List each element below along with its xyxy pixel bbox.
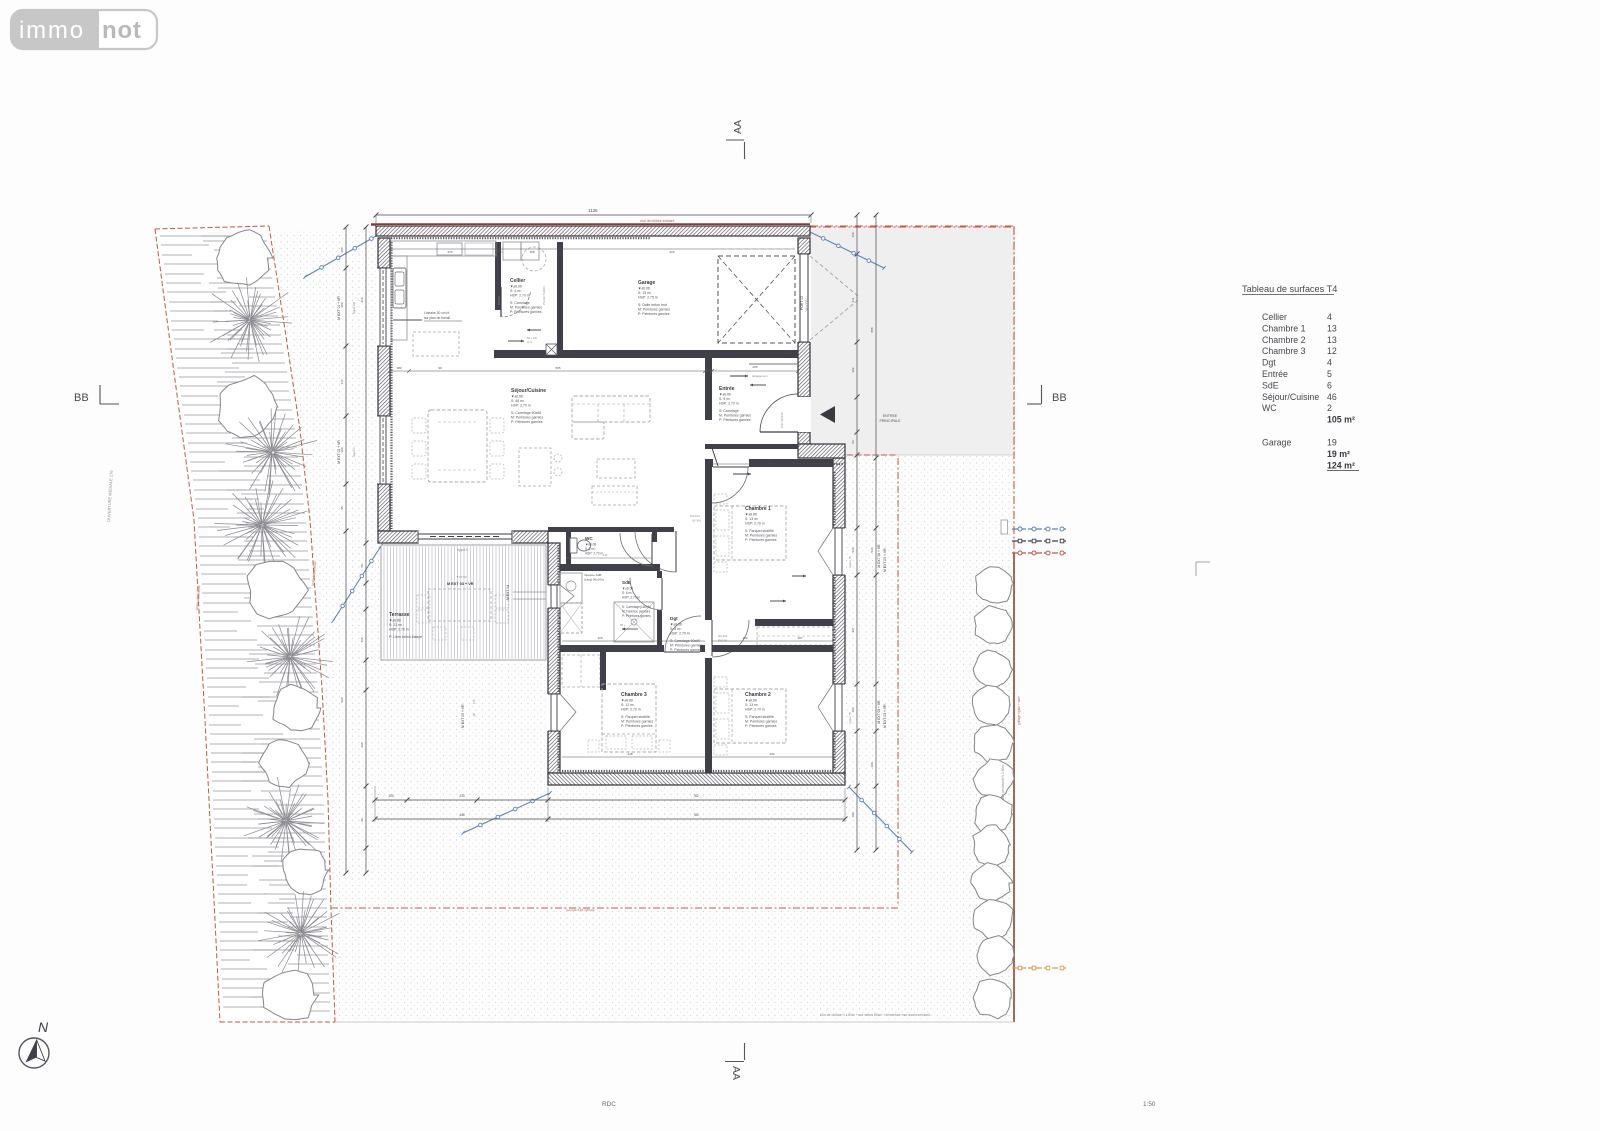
svg-text:M: Faïence peinture: M: Faïence peinture <box>622 610 651 614</box>
svg-text:Tableau de surfaces T4: Tableau de surfaces T4 <box>1242 284 1337 294</box>
svg-text:105 m²: 105 m² <box>1327 415 1355 425</box>
svg-text:205: 205 <box>752 365 757 369</box>
svg-text:H: 0: H: 0 <box>527 340 532 344</box>
svg-text:▼±0.00: ▼±0.00 <box>510 285 522 289</box>
svg-text:100: 100 <box>851 812 855 817</box>
svg-text:56: 56 <box>851 440 855 444</box>
svg-text:M: Peintures garnies: M: Peintures garnies <box>745 720 777 724</box>
svg-text:P: Peintures garnies: P: Peintures garnies <box>510 310 542 314</box>
svg-text:270: 270 <box>447 250 452 254</box>
svg-text:grillage rigide + haie: grillage rigide + haie <box>1017 696 1021 725</box>
svg-text:HSP: 2.70 m: HSP: 2.70 m <box>389 628 409 632</box>
svg-text:4: 4 <box>1327 312 1332 322</box>
svg-text:P: Peintures garnies: P: Peintures garnies <box>622 614 651 618</box>
svg-text:Garage: Garage <box>1262 438 1291 448</box>
svg-text:WC: WC <box>1262 403 1277 413</box>
svg-text:S: 22 m²: S: 22 m² <box>389 623 403 627</box>
svg-text:Entrée: Entrée <box>719 386 735 392</box>
svg-text:19: 19 <box>1327 438 1337 448</box>
svg-text:HSP: 2.70 m: HSP: 2.70 m <box>622 596 640 600</box>
svg-text:565: 565 <box>555 366 560 370</box>
svg-text:M: Peintures garnies: M: Peintures garnies <box>670 644 702 648</box>
svg-text:sur plan de travail: sur plan de travail <box>424 316 450 320</box>
svg-text:AA: AA <box>732 120 744 134</box>
svg-text:Pm.02 73/204: Pm.02 73/204 <box>542 286 546 305</box>
svg-text:PRINCIPALE: PRINCIPALE <box>879 419 901 423</box>
svg-text:immo: immo <box>19 17 85 44</box>
svg-text:90: 90 <box>498 250 502 254</box>
svg-text:P: Peintures garnies: P: Peintures garnies <box>638 312 670 316</box>
svg-text:307: 307 <box>851 627 855 632</box>
svg-text:haie persistante h.1.80m: haie persistante h.1.80m <box>1001 765 1005 800</box>
svg-text:90: 90 <box>360 818 364 822</box>
svg-text:not: not <box>102 17 142 44</box>
svg-text:Chambre 1: Chambre 1 <box>1262 323 1306 333</box>
svg-text:▼±0.00: ▼±0.00 <box>670 623 682 627</box>
svg-text:P: Peintures garnies: P: Peintures garnies <box>621 724 653 728</box>
svg-text:SdE: SdE <box>622 580 631 585</box>
svg-text:WC: WC <box>585 536 593 541</box>
svg-text:S: 5 m²: S: 5 m² <box>719 397 731 401</box>
svg-text:M EXT 03 + VR: M EXT 03 + VR <box>447 582 474 586</box>
svg-text:M EXT 01 + VR: M EXT 01 + VR <box>337 296 341 320</box>
svg-text:▼±0.00: ▼±0.00 <box>585 543 596 547</box>
svg-text:100: 100 <box>388 794 394 798</box>
svg-text:P.01 90/215: P.01 90/215 <box>780 412 784 428</box>
svg-text:19 m²: 19 m² <box>1327 449 1350 459</box>
svg-text:620: 620 <box>669 250 674 254</box>
svg-text:160: 160 <box>360 637 364 642</box>
svg-text:Cellier: Cellier <box>1262 312 1287 322</box>
svg-text:Appui 0M: Appui 0M <box>352 301 356 313</box>
svg-text:46: 46 <box>1327 392 1337 402</box>
svg-text:recul de 5.00 m/limite: recul de 5.00 m/limite <box>566 908 595 912</box>
svg-text:▼±0.00: ▼±0.00 <box>456 575 467 579</box>
svg-text:Séjour/Cuisine: Séjour/Cuisine <box>1262 392 1319 402</box>
svg-text:dégagement: dégagement <box>752 374 768 378</box>
svg-text:S: 13 m²: S: 13 m² <box>745 703 759 707</box>
svg-text:HSP: 2.70 m: HSP: 2.70 m <box>745 522 765 526</box>
svg-text:240: 240 <box>767 459 772 463</box>
svg-text:HSP: 2.70 m: HSP: 2.70 m <box>510 294 530 298</box>
svg-text:S: 6 m²: S: 6 m² <box>622 591 632 595</box>
svg-text:160: 160 <box>851 707 855 712</box>
svg-text:302: 302 <box>851 367 855 372</box>
svg-text:HSP: 2.70 m: HSP: 2.70 m <box>745 708 765 712</box>
svg-text:M: Peintures garnies: M: Peintures garnies <box>511 416 543 420</box>
svg-text:HSP: 2.70 m: HSP: 2.70 m <box>670 632 690 636</box>
svg-text:P.04.01: P.04.01 <box>690 514 700 518</box>
svg-text:M EXT 03 + VR: M EXT 03 + VR <box>877 544 881 568</box>
svg-text:Chambre 3: Chambre 3 <box>621 692 647 698</box>
svg-text:Entrée: Entrée <box>1262 369 1288 379</box>
svg-text:(0/ X0): (0/ X0) <box>692 519 701 523</box>
svg-text:Linéaire 30 cm ht: Linéaire 30 cm ht <box>424 311 449 315</box>
svg-text:P: Peintures garnies: P: Peintures garnies <box>511 420 543 424</box>
svg-text:Séjour/Cuisine: Séjour/Cuisine <box>511 388 546 394</box>
svg-text:M EXT 05 + VR: M EXT 05 + VR <box>461 704 465 728</box>
svg-text:M: Peintures garnies: M: Peintures garnies <box>621 720 653 724</box>
svg-text:100: 100 <box>851 232 855 237</box>
svg-text:6: 6 <box>1327 380 1332 390</box>
svg-text:PORT 02: PORT 02 <box>800 296 804 310</box>
svg-text:211: 211 <box>851 297 855 302</box>
svg-text:4: 4 <box>1327 358 1332 368</box>
svg-text:(Larg) 90x(H)q: (Larg) 90x(H)q <box>584 578 604 582</box>
svg-text:12: 12 <box>1327 346 1337 356</box>
svg-text:HSP: 2.70 m: HSP: 2.70 m <box>585 552 603 556</box>
svg-text:190: 190 <box>870 762 874 767</box>
svg-text:S: 12 m²: S: 12 m² <box>621 703 635 707</box>
svg-text:M EXT 04: M EXT 04 <box>506 585 510 600</box>
svg-text:Terrasse: Terrasse <box>389 612 410 618</box>
svg-text:Cellier: Cellier <box>510 278 525 284</box>
svg-text:Mur de clôture h 1.80m +mur bé: Mur de clôture h 1.80m +mur béton 80cm +… <box>820 1013 930 1017</box>
svg-text:HSP: 2.70 m: HSP: 2.70 m <box>511 404 531 408</box>
svg-text:90: 90 <box>438 366 442 370</box>
svg-text:60: 60 <box>360 564 364 568</box>
svg-text:M: Peintures garnies: M: Peintures garnies <box>638 308 670 312</box>
svg-text:P: Peintures garnies: P: Peintures garnies <box>670 648 702 652</box>
svg-text:762: 762 <box>693 794 699 798</box>
svg-text:240: 240 <box>769 752 774 756</box>
svg-text:547: 547 <box>870 547 874 552</box>
svg-text:S: 19 m²: S: 19 m² <box>638 291 652 295</box>
svg-text:S: 4 m²: S: 4 m² <box>510 289 522 293</box>
svg-text:Pm.03: Pm.03 <box>497 296 501 305</box>
svg-text:Appui 0: Appui 0 <box>457 548 468 552</box>
svg-text:P: Peintures garnies: P: Peintures garnies <box>745 538 777 542</box>
svg-text:2: 2 <box>1327 403 1332 413</box>
svg-text:AA: AA <box>730 1066 742 1080</box>
svg-text:888: 888 <box>870 327 874 332</box>
svg-text:95: 95 <box>340 506 344 510</box>
svg-text:Appui 75: Appui 75 <box>848 556 852 568</box>
svg-text:M: Peintures garnies: M: Peintures garnies <box>719 414 751 418</box>
svg-text:BB: BB <box>74 392 89 404</box>
svg-text:Dgt: Dgt <box>1262 358 1276 368</box>
svg-text:S: Parquet stratifié: S: Parquet stratifié <box>621 715 650 719</box>
svg-text:HSP: 2.70 m: HSP: 2.70 m <box>621 708 641 712</box>
svg-text:13: 13 <box>1327 335 1337 345</box>
svg-text:HSP: 2.70 m: HSP: 2.70 m <box>719 402 739 406</box>
svg-text:RDC: RDC <box>602 1101 616 1108</box>
svg-text:HSP: 2.75 m: HSP: 2.75 m <box>638 296 658 300</box>
svg-text:M: Peintures garnies: M: Peintures garnies <box>510 306 542 310</box>
svg-text:102: 102 <box>742 636 747 640</box>
svg-text:S: 46 m²: S: 46 m² <box>511 399 525 403</box>
svg-text:50 x 120: 50 x 120 <box>527 336 538 340</box>
svg-text:S: 2 m²: S: 2 m² <box>585 547 595 551</box>
svg-text:140: 140 <box>472 699 476 704</box>
svg-text:mur de clôture existant: mur de clôture existant <box>640 219 674 223</box>
svg-text:S: Carrelage: S: Carrelage <box>719 409 739 413</box>
svg-text:S: Parquet stratifié: S: Parquet stratifié <box>745 715 774 719</box>
svg-text:240: 240 <box>603 553 608 557</box>
svg-text:1:50: 1:50 <box>1143 1101 1156 1108</box>
svg-text:▼±0.00: ▼±0.00 <box>745 513 757 517</box>
svg-text:▼±0.00: ▼±0.00 <box>621 699 633 703</box>
svg-text:P: Peintures garnies: P: Peintures garnies <box>719 418 751 422</box>
svg-text:M EXT 03 + VR: M EXT 03 + VR <box>877 700 881 724</box>
svg-text:02/ 204: 02/ 204 <box>718 634 728 638</box>
svg-text:180: 180 <box>396 366 401 370</box>
svg-text:173: 173 <box>340 379 344 384</box>
svg-text:M: Peintures garnies: M: Peintures garnies <box>745 534 777 538</box>
svg-text:▼±0.00: ▼±0.00 <box>389 619 401 623</box>
svg-text:P.02.01: P.02.01 <box>718 639 728 643</box>
svg-text:P: Peintures garnies: P: Peintures garnies <box>745 724 777 728</box>
svg-text:M EXT 03 + VR: M EXT 03 + VR <box>883 548 887 572</box>
svg-text:BB: BB <box>1052 392 1067 404</box>
svg-text:S: 4 m²: S: 4 m² <box>670 627 682 631</box>
svg-text:▼±0.00: ▼±0.00 <box>622 587 633 591</box>
svg-text:198: 198 <box>529 250 534 254</box>
svg-text:446: 446 <box>459 813 465 817</box>
svg-text:▼±0.00: ▼±0.00 <box>745 699 757 703</box>
svg-text:Vasque+SdB: Vasque+SdB <box>584 573 601 577</box>
svg-text:760: 760 <box>693 813 699 817</box>
svg-text:230: 230 <box>459 794 465 798</box>
svg-text:240x200: 240x200 <box>805 300 809 312</box>
svg-text:Chambre 3: Chambre 3 <box>1262 346 1306 356</box>
svg-text:▼±0.00: ▼±0.00 <box>719 393 731 397</box>
svg-text:▼±0.00: ▼±0.00 <box>511 395 523 399</box>
svg-text:SdE: SdE <box>1262 380 1279 390</box>
svg-text:M EXT 03 + VR: M EXT 03 + VR <box>883 704 887 728</box>
svg-text:230: 230 <box>360 742 364 747</box>
svg-text:120: 120 <box>597 636 602 640</box>
svg-text:248: 248 <box>627 752 632 756</box>
svg-text:P: Libre béton balayé: P: Libre béton balayé <box>389 635 422 639</box>
svg-text:S: Carrelage 60x60: S: Carrelage 60x60 <box>511 411 541 415</box>
svg-text:546: 546 <box>851 547 855 552</box>
svg-text:124 m²: 124 m² <box>1327 460 1355 470</box>
svg-text:520: 520 <box>340 697 344 702</box>
svg-text:S: Parquet stratifié: S: Parquet stratifié <box>745 529 774 533</box>
svg-text:Appui 0: Appui 0 <box>352 447 356 457</box>
svg-text:5: 5 <box>1327 369 1332 379</box>
svg-text:1128: 1128 <box>588 208 598 213</box>
svg-text:Chambre 2: Chambre 2 <box>745 692 771 698</box>
svg-text:Chambre 1: Chambre 1 <box>745 506 771 512</box>
svg-text:Garage: Garage <box>638 280 655 286</box>
svg-text:ENTREE: ENTREE <box>883 414 898 418</box>
svg-text:S: Dalle béton brut: S: Dalle béton brut <box>638 303 667 307</box>
svg-text:S: Carrelage: S: Carrelage <box>510 301 530 305</box>
svg-text:N: N <box>38 1019 49 1035</box>
svg-text:167: 167 <box>797 636 802 640</box>
svg-text:13: 13 <box>1327 323 1337 333</box>
svg-text:Appui 75: Appui 75 <box>848 712 852 724</box>
svg-text:M EXT 02 + VR: M EXT 02 + VR <box>337 440 341 464</box>
svg-text:100: 100 <box>340 247 344 252</box>
svg-text:S: 13 m²: S: 13 m² <box>745 517 759 521</box>
svg-text:90: 90 <box>472 712 476 716</box>
svg-text:Chambre 2: Chambre 2 <box>1262 335 1306 345</box>
svg-text:▼±0.00: ▼±0.00 <box>638 287 650 291</box>
svg-text:316: 316 <box>360 297 364 302</box>
svg-text:Dgt: Dgt <box>670 616 678 621</box>
svg-text:85 +: 85 + <box>620 623 626 627</box>
svg-text:S: Carrelage(160x1): S: Carrelage(160x1) <box>622 605 651 609</box>
